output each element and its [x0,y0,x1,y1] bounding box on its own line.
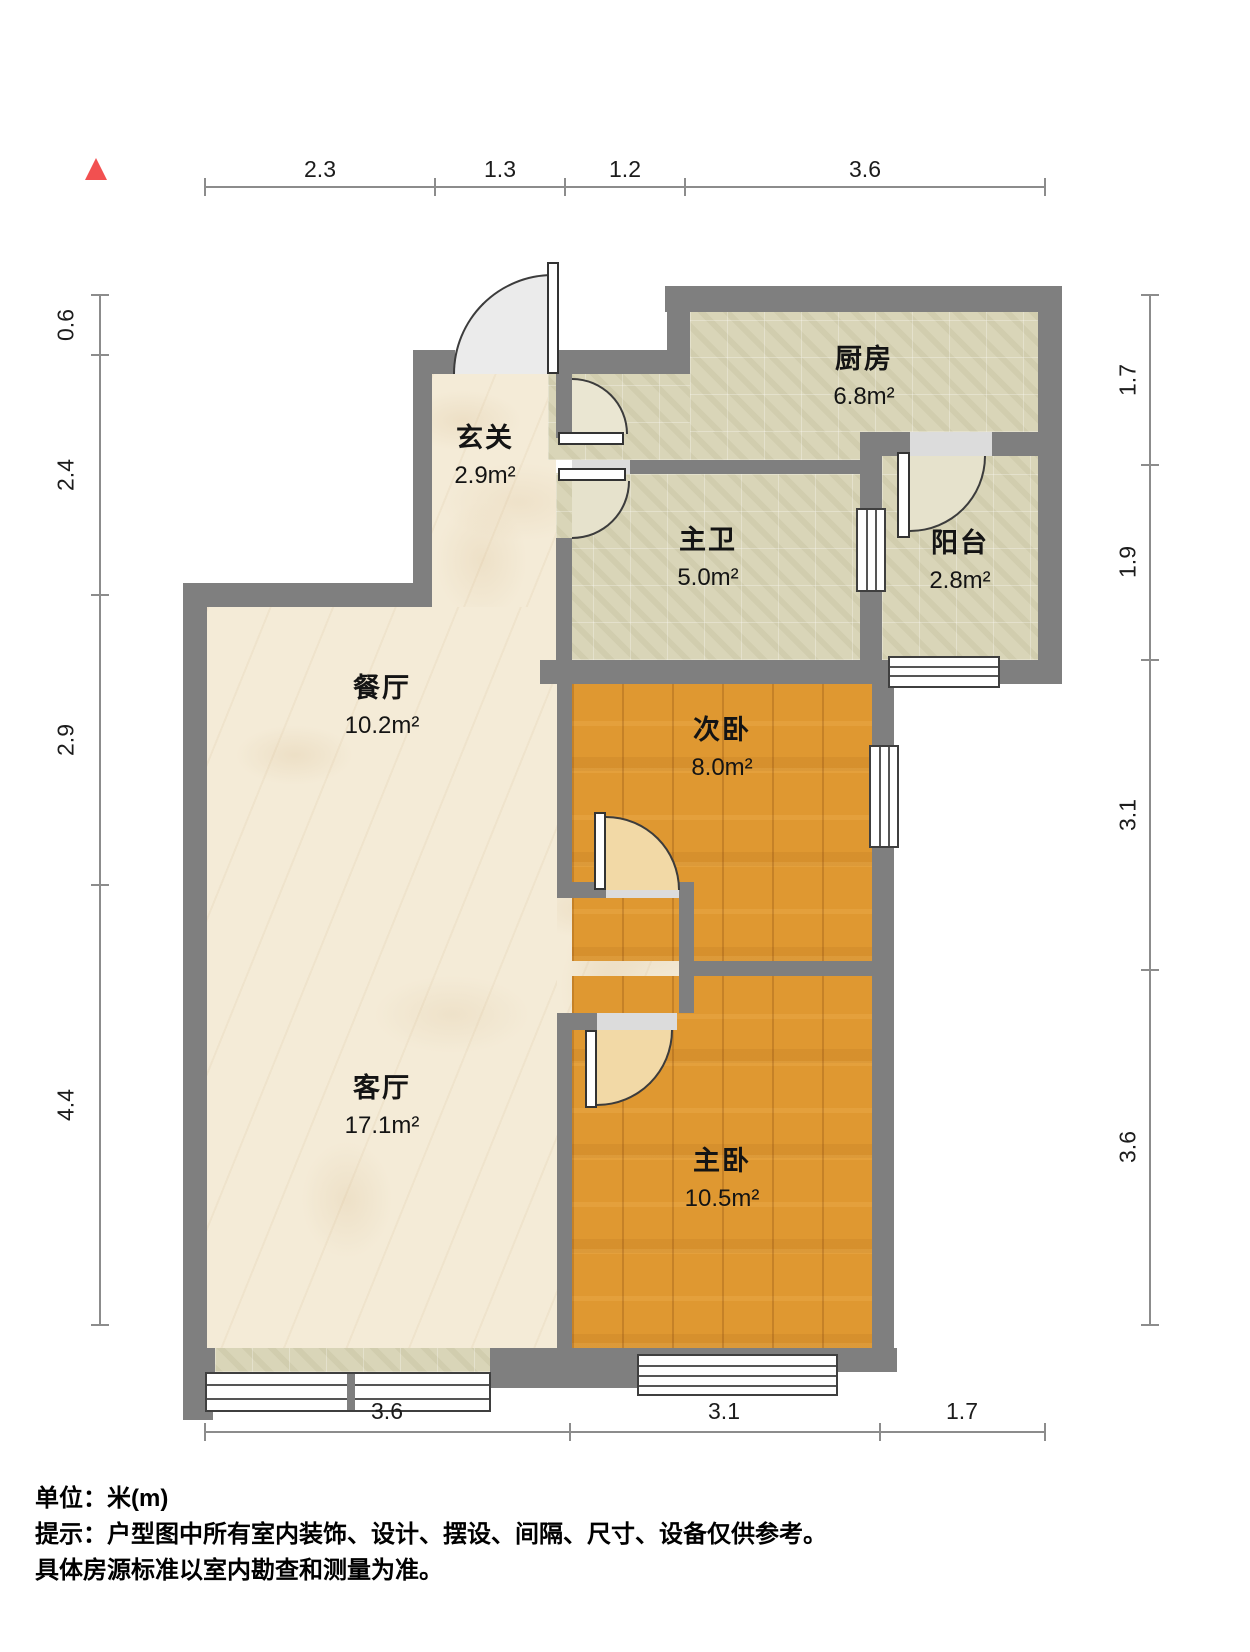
dim-bottom-3: 1.7 [946,1398,978,1425]
wall-kitchen-left [667,286,690,374]
bedroom2-window [869,745,899,848]
wall-entry-bath-lower [556,538,572,660]
wall-entry-bath-upper [556,374,572,438]
tick [204,1423,206,1441]
wall-bedroom-divider [679,961,872,976]
entrance-door-leaf [547,262,559,374]
balcony-door-leaf [897,452,910,538]
bedroom2-door-leaf [594,812,606,890]
dim-bottom-1: 3.6 [371,1398,403,1425]
tick [91,294,109,296]
dim-left-1: 0.6 [53,309,80,341]
dim-right-3: 3.1 [1115,799,1142,831]
balcony-door-opening [910,432,992,456]
dim-top-1: 2.3 [304,156,336,183]
bedroom1-door-opening [597,1013,677,1030]
entrance-door-arc [453,274,553,374]
dim-top-2: 1.3 [484,156,516,183]
tick [1141,659,1159,661]
bath-door-leaf [558,468,626,481]
tick [91,884,109,886]
bedroom1-door-leaf [585,1030,597,1108]
footer-unit-note: 单位：米(m) [35,1478,168,1513]
room-kitchen-floor-lower [690,432,882,460]
balcony-bottom-window [888,656,1000,688]
tick [564,178,566,196]
bedroom1-window [637,1354,838,1396]
wall-entry-top-right [547,350,667,374]
footer-tip-line1: 提示：户型图中所有室内装饰、设计、摆设、间隔、尺寸、设备仅供参考。 [35,1514,827,1549]
dimension-line-right [1149,295,1151,1325]
north-marker-icon [85,158,107,180]
room-dining-living-floor [207,607,557,1348]
footer-tip-line2: 具体房源标准以室内勘查和测量为准。 [35,1550,443,1585]
room-entry-floor [432,374,556,607]
dimension-line-bottom [205,1431,1045,1433]
wall-bedroom1-left [557,1013,572,1372]
wall-dining-top [183,583,432,607]
wall-entry-left [413,350,432,607]
living-window [205,1372,491,1412]
wall-balcony-top-right [992,432,1038,456]
tick [434,178,436,196]
wall-bath-top [630,460,860,474]
dim-left-3: 2.9 [53,724,80,756]
floorplan-canvas: 厨房 6.8m² 玄关 2.9m² 主卫 5.0m² 阳台 2.8m² 餐厅 1… [0,0,1250,1652]
dim-right-2: 1.9 [1115,546,1142,578]
dim-bottom-2: 3.1 [708,1398,740,1425]
tick [1141,1324,1159,1326]
tick [91,594,109,596]
wall-nook-right [679,882,694,1013]
dim-right-1: 1.7 [1115,364,1142,396]
dimension-line-left [99,295,101,1325]
dim-left-2: 2.4 [53,459,80,491]
dim-left-4: 4.4 [53,1089,80,1121]
wall-bedroom2-left [557,660,572,882]
tick [91,1324,109,1326]
corridor-door-leaf [558,432,624,445]
tick [1044,178,1046,196]
tick [1141,464,1159,466]
tick [91,354,109,356]
dim-top-3: 1.2 [609,156,641,183]
tick [1141,969,1159,971]
tick [1044,1423,1046,1441]
dim-right-4: 3.6 [1115,1131,1142,1163]
wall-left-outer [183,583,207,1372]
tick [569,1423,571,1441]
wall-right-outer [1038,286,1062,684]
room-kitchen-floor [690,312,1038,432]
wall-bottom-center-pier [490,1372,637,1388]
dim-top-4: 3.6 [849,156,881,183]
wall-kitchen-top [665,286,1062,312]
living-bay-sill [215,1348,490,1372]
wall-bath-bottom [540,660,882,684]
tick [879,1423,881,1441]
bath-balcony-window [856,508,886,592]
tick [204,178,206,196]
tick [1141,294,1159,296]
tick [684,178,686,196]
dimension-line-top [205,186,1045,188]
